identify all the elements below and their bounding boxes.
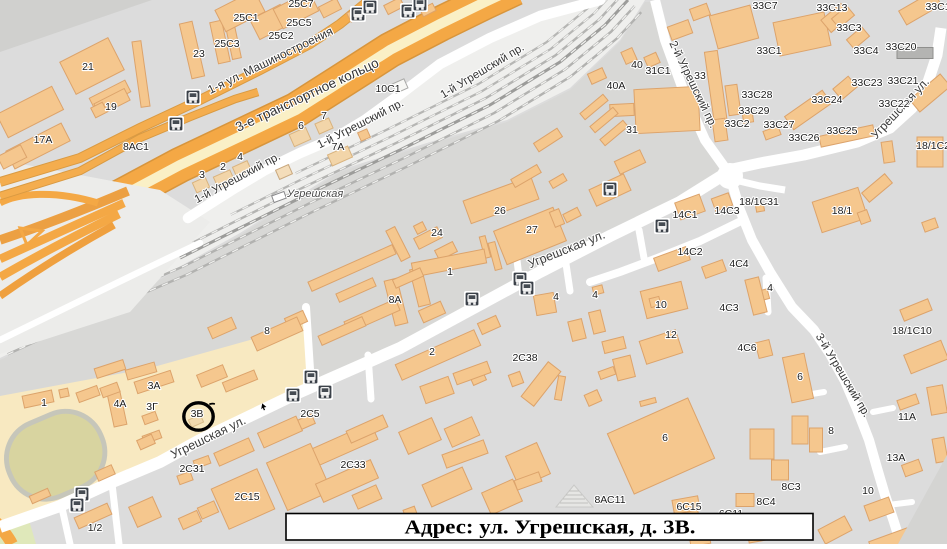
svg-text:7А: 7А xyxy=(332,141,345,153)
svg-text:33С13: 33С13 xyxy=(817,2,848,14)
svg-text:4: 4 xyxy=(553,291,559,303)
svg-text:3А: 3А xyxy=(148,380,161,392)
svg-text:2С15: 2С15 xyxy=(234,491,259,503)
svg-text:4: 4 xyxy=(767,282,773,294)
svg-text:6С15: 6С15 xyxy=(676,501,701,513)
svg-text:4С4: 4С4 xyxy=(729,258,748,270)
svg-text:3: 3 xyxy=(199,169,205,181)
svg-text:2С5: 2С5 xyxy=(300,408,319,420)
svg-text:8АС11: 8АС11 xyxy=(594,494,625,506)
svg-text:3Г: 3Г xyxy=(146,401,158,413)
svg-text:33: 33 xyxy=(694,70,706,82)
svg-text:4С3: 4С3 xyxy=(719,302,738,314)
svg-text:8АС1: 8АС1 xyxy=(123,141,149,153)
svg-text:33С26: 33С26 xyxy=(789,132,820,144)
svg-text:8А: 8А xyxy=(389,294,402,306)
svg-text:33С27: 33С27 xyxy=(764,119,795,131)
svg-text:25С1: 25С1 xyxy=(233,12,258,24)
svg-text:12: 12 xyxy=(665,329,677,341)
svg-text:26: 26 xyxy=(494,205,506,217)
svg-text:14С2: 14С2 xyxy=(677,246,702,258)
svg-text:2С33: 2С33 xyxy=(340,459,365,471)
svg-text:18/1С27: 18/1С27 xyxy=(916,140,947,152)
svg-text:25С5: 25С5 xyxy=(286,17,311,29)
svg-text:10С1: 10С1 xyxy=(375,83,400,95)
svg-text:25С2: 25С2 xyxy=(268,30,293,42)
svg-text:33С3: 33С3 xyxy=(836,22,861,34)
svg-text:3В: 3В xyxy=(191,408,204,420)
svg-text:8: 8 xyxy=(264,325,270,337)
svg-text:6: 6 xyxy=(797,371,803,383)
svg-text:25С3: 25С3 xyxy=(214,38,239,50)
svg-text:18/1С10: 18/1С10 xyxy=(892,325,932,337)
svg-text:1/2: 1/2 xyxy=(88,522,103,534)
svg-text:33С25: 33С25 xyxy=(827,125,858,137)
svg-text:19: 19 xyxy=(105,101,117,113)
svg-text:27: 27 xyxy=(526,224,538,236)
svg-text:33С22: 33С22 xyxy=(879,98,910,110)
svg-text:1: 1 xyxy=(41,397,47,409)
svg-text:33С21: 33С21 xyxy=(888,75,919,87)
svg-text:7: 7 xyxy=(321,110,327,122)
svg-text:33С1: 33С1 xyxy=(756,45,781,57)
svg-text:6: 6 xyxy=(298,120,304,132)
svg-text:40: 40 xyxy=(631,59,643,71)
svg-text:8С3: 8С3 xyxy=(781,481,800,493)
svg-text:2: 2 xyxy=(220,161,226,173)
svg-text:33С24: 33С24 xyxy=(812,94,843,106)
svg-text:6: 6 xyxy=(662,432,668,444)
svg-text:4С6: 4С6 xyxy=(737,342,756,354)
svg-text:Адрес: ул. Угрешская, д. 3В.: Адрес: ул. Угрешская, д. 3В. xyxy=(405,517,696,539)
svg-text:2С31: 2С31 xyxy=(179,463,204,475)
svg-text:33С28: 33С28 xyxy=(742,89,773,101)
svg-text:8С4: 8С4 xyxy=(756,496,775,508)
svg-text:11А: 11А xyxy=(898,411,916,423)
svg-text:14С1: 14С1 xyxy=(672,209,697,221)
svg-text:31: 31 xyxy=(626,124,638,136)
svg-text:33С1: 33С1 xyxy=(925,1,947,13)
svg-text:1: 1 xyxy=(447,266,453,278)
svg-text:10: 10 xyxy=(862,485,874,497)
svg-text:33С2: 33С2 xyxy=(724,118,749,130)
svg-text:33С4: 33С4 xyxy=(853,45,878,57)
svg-text:18/1С31: 18/1С31 xyxy=(739,196,779,208)
svg-text:2С38: 2С38 xyxy=(512,352,537,364)
svg-text:2: 2 xyxy=(429,346,435,358)
svg-text:Угрешская: Угрешская xyxy=(286,188,343,200)
svg-text:4: 4 xyxy=(237,151,243,163)
svg-text:33С29: 33С29 xyxy=(739,105,770,117)
svg-text:40А: 40А xyxy=(607,80,626,92)
svg-text:23: 23 xyxy=(193,48,205,60)
svg-text:14С3: 14С3 xyxy=(714,205,739,217)
svg-text:31С1: 31С1 xyxy=(645,65,670,77)
svg-text:4: 4 xyxy=(592,289,598,301)
svg-text:4А: 4А xyxy=(114,398,127,410)
svg-text:13А: 13А xyxy=(887,452,906,464)
svg-text:24: 24 xyxy=(431,227,443,239)
svg-text:8: 8 xyxy=(828,425,834,437)
svg-text:10: 10 xyxy=(655,299,667,311)
svg-text:33С7: 33С7 xyxy=(752,0,777,12)
svg-text:33С20: 33С20 xyxy=(886,41,917,53)
svg-text:17А: 17А xyxy=(34,134,53,146)
svg-text:21: 21 xyxy=(82,61,94,73)
svg-text:18/1: 18/1 xyxy=(832,205,853,217)
svg-text:33С23: 33С23 xyxy=(852,77,883,89)
svg-text:25С7: 25С7 xyxy=(288,0,313,10)
